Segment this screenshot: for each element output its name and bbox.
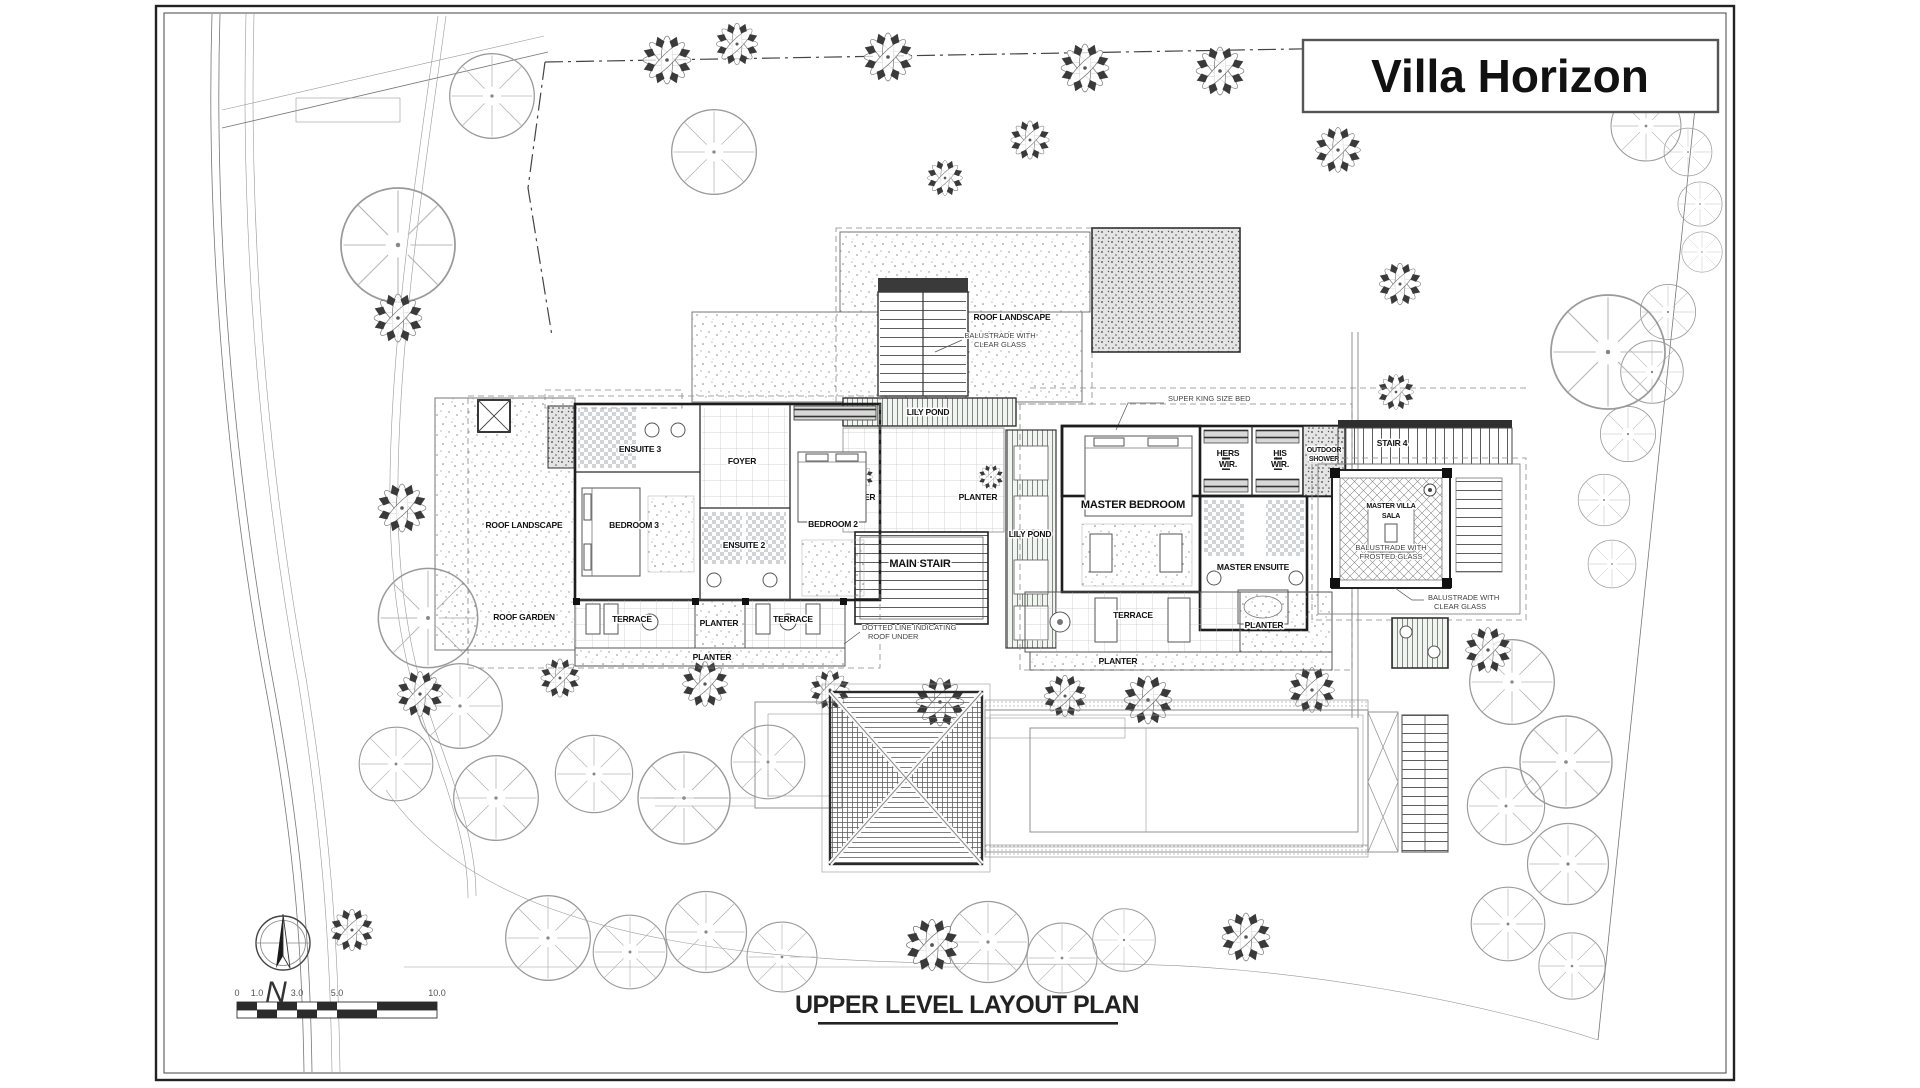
area-label-lily-pond-court: LILY POND (1009, 529, 1052, 539)
scale-tick-1: 1.0 (251, 988, 264, 998)
room-label-outdoor-shower-1: OUTDOOR (1307, 447, 1342, 454)
room-label-his-wir-1: HIS (1273, 448, 1287, 458)
site-plan-drawing: ROOF LANDSCAPE BALUSTRADE WITH CLEAR GLA… (0, 0, 1920, 1088)
area-label-planter-mid: PLANTER (700, 618, 739, 628)
area-label-planter-court-right: PLANTER (959, 492, 998, 502)
svg-text:SUPER KING SIZE BED: SUPER KING SIZE BED (1168, 394, 1251, 403)
room-label-his-wir-2: WIR. (1271, 459, 1289, 469)
room-label-sala-1: MASTER VILLA (1366, 503, 1415, 510)
room-label-ensuite2: ENSUITE 2 (723, 540, 766, 550)
note-balustrade-frosted: BALUSTRADE WITH FROSTED GLASS (1355, 543, 1426, 561)
area-label-planter-master: PLANTER (1245, 620, 1284, 630)
area-label-terrace-b3: TERRACE (612, 614, 652, 624)
svg-text:DOTTED LINE INDICATING: DOTTED LINE INDICATING (862, 623, 957, 632)
room-label-master-ensuite: MASTER ENSUITE (1217, 562, 1290, 572)
room-label-main-stair: MAIN STAIR (889, 558, 951, 570)
room-label-ensuite3: ENSUITE 3 (619, 444, 662, 454)
svg-text:BALUSTRADE WITH: BALUSTRADE WITH (964, 331, 1035, 340)
floor-plan-sheet: ROOF LANDSCAPE BALUSTRADE WITH CLEAR GLA… (0, 0, 1920, 1088)
area-label-roof-garden: ROOF GARDEN (493, 612, 555, 622)
room-label-sala-2: SALA (1382, 513, 1400, 520)
title-block: Villa Horizon (1303, 40, 1718, 112)
area-label-roof-landscape-left: ROOF LANDSCAPE (485, 520, 563, 530)
svg-text:FROSTED GLASS: FROSTED GLASS (1360, 552, 1423, 561)
room-label-stair4: STAIR 4 (1377, 438, 1408, 448)
scale-tick-5: 5.0 (331, 988, 344, 998)
area-label-terrace-b2: TERRACE (773, 614, 813, 624)
area-label-planter-strip-master: PLANTER (1099, 656, 1138, 666)
area-label-lily-pond-top: LILY POND (907, 407, 950, 417)
svg-text:BALUSTRADE WITH: BALUSTRADE WITH (1355, 543, 1426, 552)
plan-title: UPPER LEVEL LAYOUT PLAN (795, 991, 1139, 1019)
area-label-terrace-master: TERRACE (1113, 610, 1153, 620)
svg-text:ROOF UNDER: ROOF UNDER (868, 632, 919, 641)
area-label-planter-strip-left: PLANTER (693, 652, 732, 662)
room-label-hers-wir-1: HERS (1217, 448, 1240, 458)
area-label-roof-landscape-top: ROOF LANDSCAPE (973, 312, 1051, 322)
svg-text:BALUSTRADE WITH: BALUSTRADE WITH (1428, 593, 1499, 602)
svg-text:CLEAR GLASS: CLEAR GLASS (1434, 602, 1486, 611)
room-label-bedroom3: BEDROOM 3 (609, 520, 659, 530)
room-label-master-bedroom: MASTER BEDROOM (1081, 499, 1185, 511)
room-label-outdoor-shower-2: SHOWER (1309, 456, 1339, 463)
svg-text:CLEAR GLASS: CLEAR GLASS (974, 340, 1026, 349)
room-label-hers-wir-2: WIR. (1219, 459, 1237, 469)
scale-tick-10: 10.0 (428, 988, 446, 998)
scale-tick-0: 0 (234, 988, 239, 998)
room-label-bedroom2: BEDROOM 2 (808, 519, 858, 529)
scale-tick-3: 3.0 (291, 988, 304, 998)
central-court: LILY POND LILY POND PLANTER PLANTER MAIN… (837, 398, 1056, 648)
room-label-foyer: FOYER (728, 456, 756, 466)
sheet-title: Villa Horizon (1371, 50, 1649, 102)
